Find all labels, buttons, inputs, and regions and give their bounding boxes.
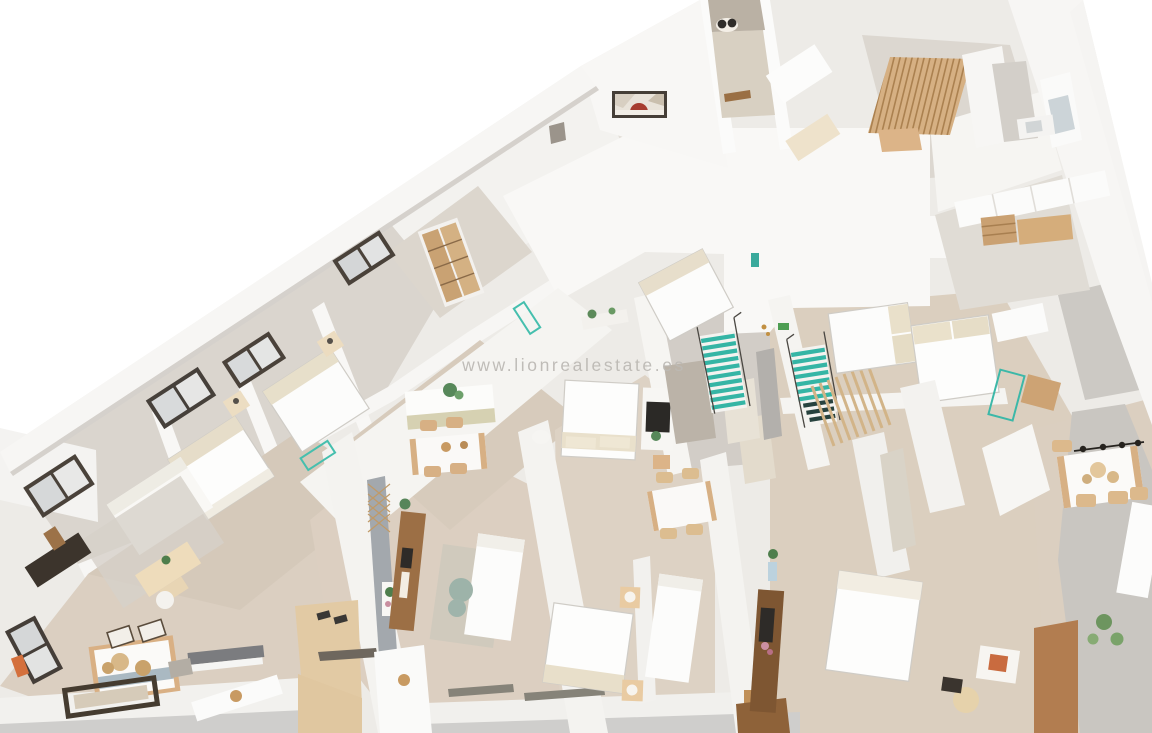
svg-text:www.lionrealestate.es: www.lionrealestate.es [461, 355, 686, 375]
